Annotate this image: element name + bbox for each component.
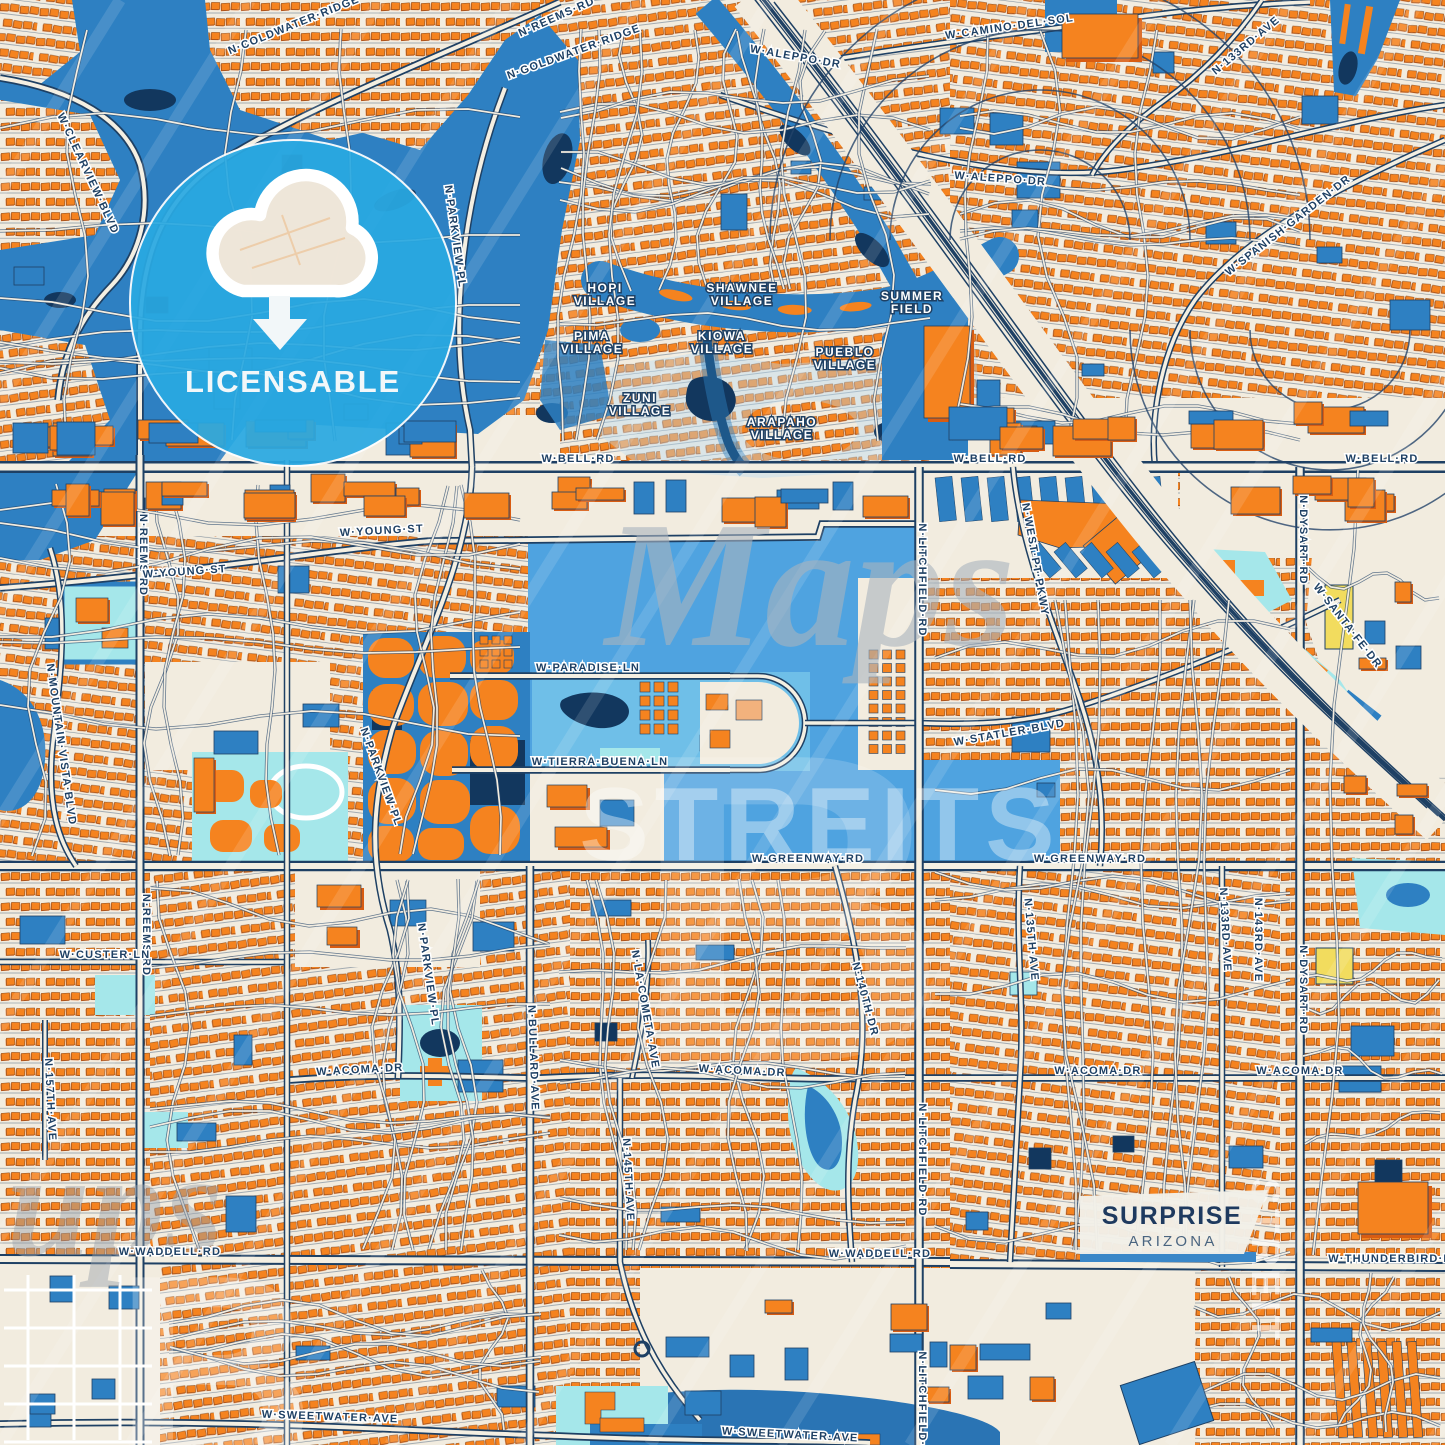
svg-text:VILLAGE: VILLAGE: [691, 342, 754, 356]
svg-text:LICENSABLE: LICENSABLE: [185, 364, 401, 399]
svg-text:SHAWNEE: SHAWNEE: [706, 281, 777, 295]
svg-text:B: B: [631, 663, 949, 1154]
svg-text:W·BELL·RD: W·BELL·RD: [953, 453, 1026, 465]
svg-text:N·LITCHFIELD·RD: N·LITCHFIELD·RD: [916, 1351, 928, 1445]
svg-text:VILLAGE: VILLAGE: [751, 428, 814, 442]
svg-text:W·PARADISE·LN: W·PARADISE·LN: [536, 662, 640, 674]
svg-text:KIOWA: KIOWA: [698, 329, 746, 343]
svg-text:W·ACOMA·DR: W·ACOMA·DR: [1054, 1065, 1141, 1077]
svg-text:ARAPAHO: ARAPAHO: [747, 415, 817, 429]
svg-text:N·143RD·AVE: N·143RD·AVE: [1252, 898, 1264, 983]
svg-text:PIMA: PIMA: [574, 329, 610, 343]
svg-text:W·BELL·RD: W·BELL·RD: [541, 453, 614, 465]
svg-text:W·GREENWAY·RD: W·GREENWAY·RD: [752, 853, 864, 865]
svg-text:VILLAGE: VILLAGE: [574, 294, 637, 308]
svg-text:SURPRISE: SURPRISE: [1102, 1202, 1243, 1230]
svg-text:ARIZONA: ARIZONA: [1128, 1233, 1217, 1250]
svg-text:N·DYSART·RD: N·DYSART·RD: [1297, 945, 1309, 1035]
svg-text:ZUNI: ZUNI: [623, 391, 657, 405]
svg-text:SUMMER: SUMMER: [881, 289, 943, 303]
svg-text:STREITS: STREITS: [579, 767, 1060, 883]
svg-text:FIELD: FIELD: [891, 302, 933, 316]
svg-text:N·LITCHFIELD·RD: N·LITCHFIELD·RD: [916, 1103, 928, 1216]
svg-text:N·REEMS·RD: N·REEMS·RD: [140, 894, 152, 976]
svg-text:W·ACOMA·DR: W·ACOMA·DR: [1256, 1065, 1343, 1077]
svg-text:W·WADDELL·RD: W·WADDELL·RD: [829, 1248, 931, 1260]
svg-text:HOPI: HOPI: [587, 281, 622, 295]
svg-text:N·DYSART·RD: N·DYSART·RD: [1297, 495, 1309, 585]
svg-text:VILLAGE: VILLAGE: [814, 358, 877, 372]
svg-text:N·REEMS·RD: N·REEMS·RD: [137, 514, 149, 596]
svg-text:VILLAGE: VILLAGE: [561, 342, 624, 356]
svg-text:PUEBLO: PUEBLO: [815, 345, 874, 359]
svg-text:VILLAGE: VILLAGE: [609, 404, 672, 418]
svg-text:W·WADDELL·RD: W·WADDELL·RD: [119, 1246, 221, 1258]
svg-text:VILLAGE: VILLAGE: [711, 294, 774, 308]
svg-text:Maps: Maps: [602, 485, 1015, 684]
svg-text:W·BELL·RD: W·BELL·RD: [1345, 453, 1418, 465]
svg-text:W·THUNDERBIRD·RD: W·THUNDERBIRD·RD: [1328, 1253, 1445, 1265]
svg-text:N·LITCHFIELD·RD: N·LITCHFIELD·RD: [916, 523, 928, 636]
svg-text:W·TIERRA·BUENA·LN: W·TIERRA·BUENA·LN: [532, 756, 669, 768]
svg-text:W·GREENWAY·RD: W·GREENWAY·RD: [1034, 853, 1146, 865]
svg-text:W·CUSTER·LN: W·CUSTER·LN: [60, 949, 151, 961]
